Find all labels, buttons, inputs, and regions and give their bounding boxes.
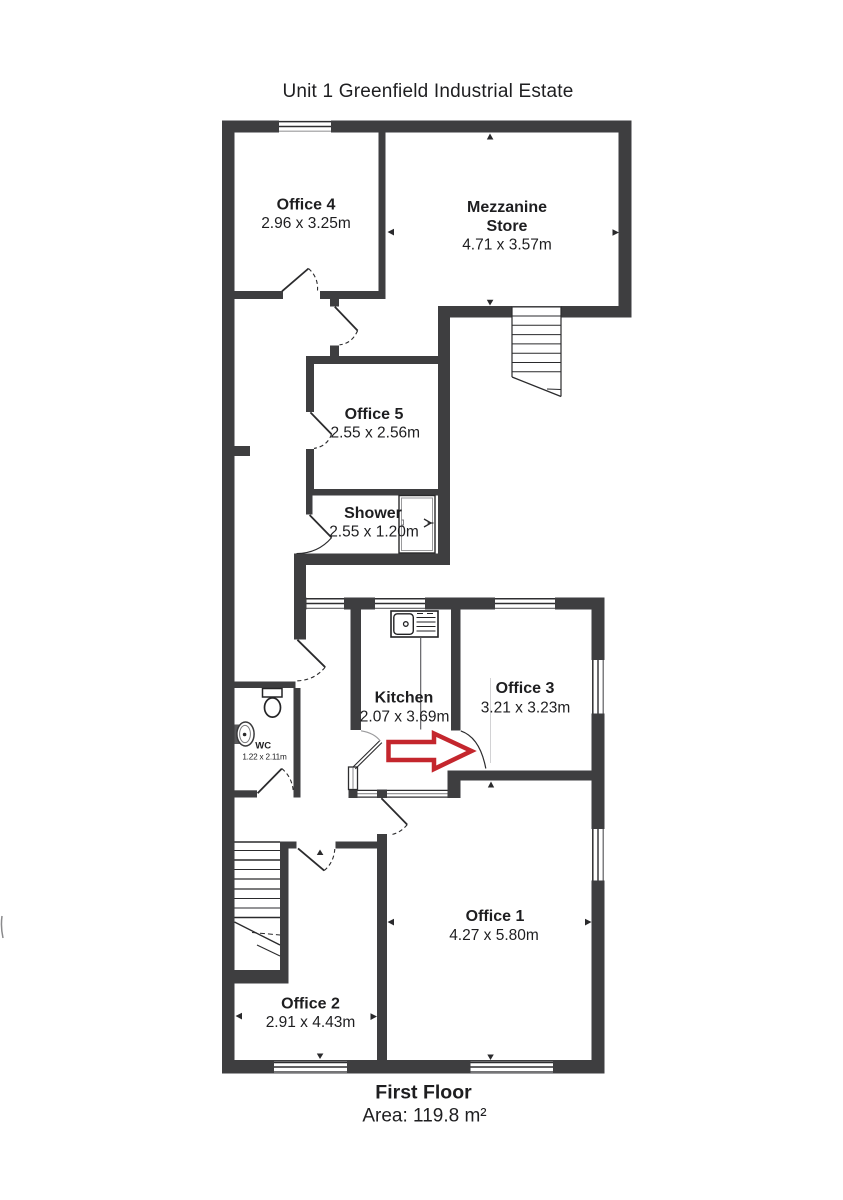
svg-text:Office 1: Office 1 <box>466 908 525 925</box>
svg-text:First Floor: First Floor <box>375 1082 472 1104</box>
svg-text:Area: 119.8 m²: Area: 119.8 m² <box>362 1106 486 1127</box>
svg-text:Office 5: Office 5 <box>345 406 404 423</box>
svg-text:2.55 x 1.20m: 2.55 x 1.20m <box>329 524 419 541</box>
svg-text:Mezzanine: Mezzanine <box>467 199 547 216</box>
svg-text:Unit 1 Greenfield Industrial E: Unit 1 Greenfield Industrial Estate <box>282 81 573 102</box>
svg-text:4.71 x 3.57m: 4.71 x 3.57m <box>462 237 552 254</box>
svg-text:Store: Store <box>487 218 528 235</box>
svg-text:Office 2: Office 2 <box>281 996 340 1013</box>
svg-text:2.55 x 2.56m: 2.55 x 2.56m <box>330 425 420 442</box>
svg-text:WC: WC <box>255 740 271 751</box>
svg-text:2.91 x 4.43m: 2.91 x 4.43m <box>266 1014 356 1031</box>
svg-text:Office 3: Office 3 <box>496 680 555 697</box>
svg-text:2.96 x 3.25m: 2.96 x 3.25m <box>261 215 351 232</box>
svg-text:2.07 x 3.69m: 2.07 x 3.69m <box>360 709 450 726</box>
svg-text:4.27 x 5.80m: 4.27 x 5.80m <box>449 927 539 944</box>
svg-text:Shower: Shower <box>344 505 402 522</box>
svg-text:1.22 x 2.11m: 1.22 x 2.11m <box>242 753 287 762</box>
svg-text:Office 4: Office 4 <box>277 197 336 214</box>
svg-text:3.21 x 3.23m: 3.21 x 3.23m <box>481 700 571 717</box>
svg-text:Kitchen: Kitchen <box>375 689 434 706</box>
